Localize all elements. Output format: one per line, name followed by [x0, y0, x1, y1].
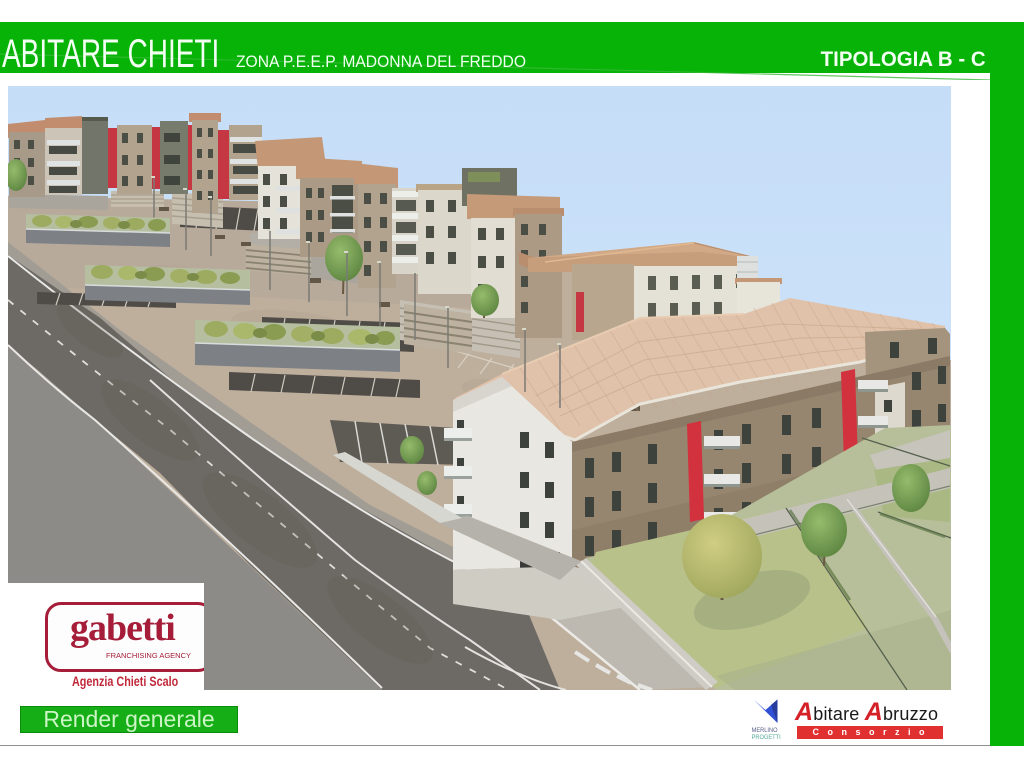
svg-text:PROGETTI: PROGETTI — [752, 735, 781, 741]
svg-text:MERLINO: MERLINO — [752, 728, 778, 734]
